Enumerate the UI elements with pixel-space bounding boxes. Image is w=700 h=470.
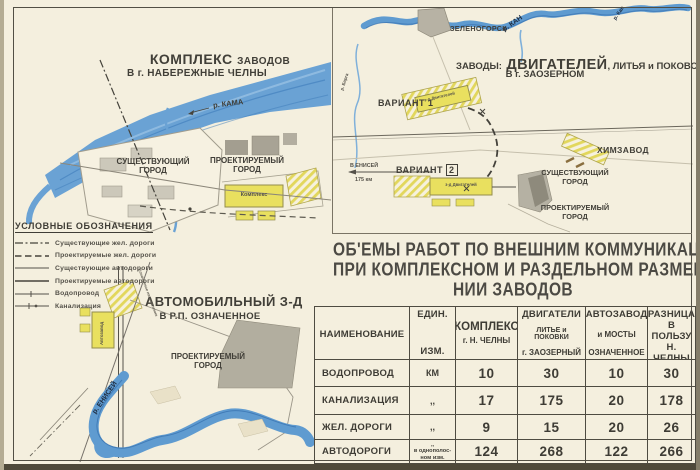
map-divider-vertical [332, 8, 333, 234]
map-divider-horizontal [332, 233, 692, 234]
scan-edge-left [0, 0, 4, 470]
scanned-planning-poster: КОМПЛЕКС ЗАВОДОВ В г. НАБЕРЕЖНЫЕ ЧЕЛНЫ р… [0, 0, 700, 470]
page-border-frame [13, 7, 692, 461]
scan-edge-bottom [0, 464, 700, 470]
scan-edge-right [696, 0, 700, 470]
